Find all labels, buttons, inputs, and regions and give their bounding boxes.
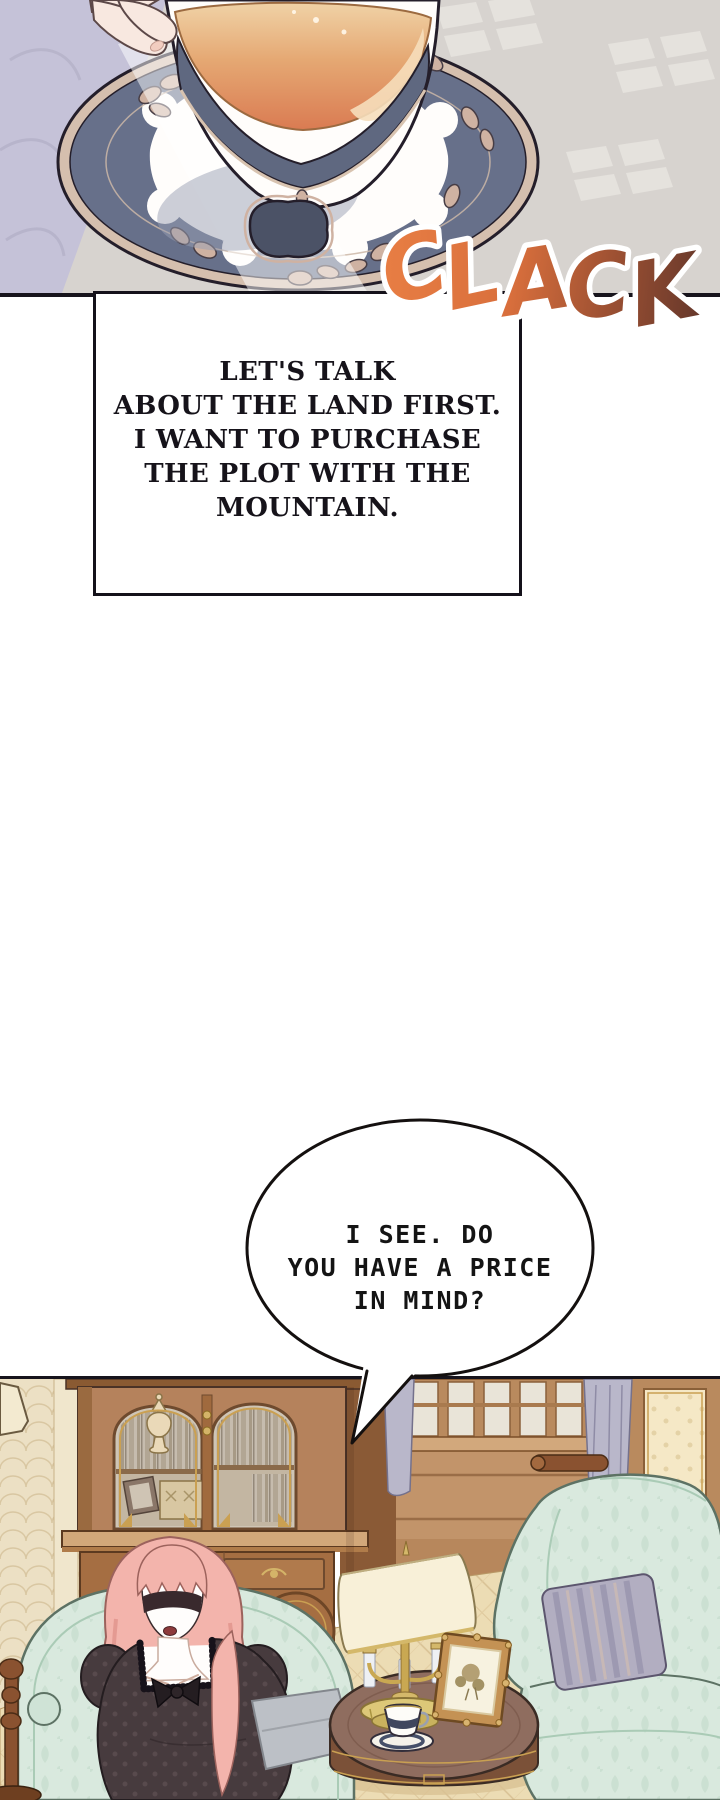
- sfx-clack: C L A C K: [378, 214, 720, 334]
- speech-box: LET'S TALK ABOUT THE LAND FIRST. I WANT …: [93, 291, 522, 596]
- speech-bubble-text: I SEE. DO YOU HAVE A PRICE IN MIND?: [230, 1218, 610, 1317]
- sfx-clack-lettering: C L A C K: [378, 214, 720, 334]
- coffee-table: [330, 1671, 538, 1786]
- cup-medallion: [250, 201, 328, 257]
- small-frame: [123, 1477, 158, 1516]
- webtoon-page: C L A C K LET'S TALK ABOUT THE LAND FIRS…: [0, 0, 720, 1800]
- speech-box-text: LET'S TALK ABOUT THE LAND FIRST. I WANT …: [96, 355, 519, 525]
- speech-bubble: I SEE. DO YOU HAVE A PRICE IN MIND?: [230, 1105, 610, 1465]
- dialogue-line: LET'S TALK: [96, 355, 519, 389]
- mouth: [164, 1627, 177, 1636]
- dialogue-line: YOU HAVE A PRICE: [230, 1251, 610, 1284]
- door-knob: [203, 1411, 211, 1419]
- striped-pillow: [541, 1573, 668, 1691]
- dialogue-line: I SEE. DO: [230, 1218, 610, 1251]
- dialogue-line: THE PLOT WITH THE: [96, 457, 519, 491]
- dialogue-line: I WANT TO PURCHASE: [96, 423, 519, 457]
- dialogue-line: MOUNTAIN.: [96, 491, 519, 525]
- door-knob: [203, 1427, 211, 1435]
- dialogue-line: IN MIND?: [230, 1284, 610, 1317]
- dialogue-line: ABOUT THE LAND FIRST.: [96, 389, 519, 423]
- picture-frame: [429, 1629, 515, 1730]
